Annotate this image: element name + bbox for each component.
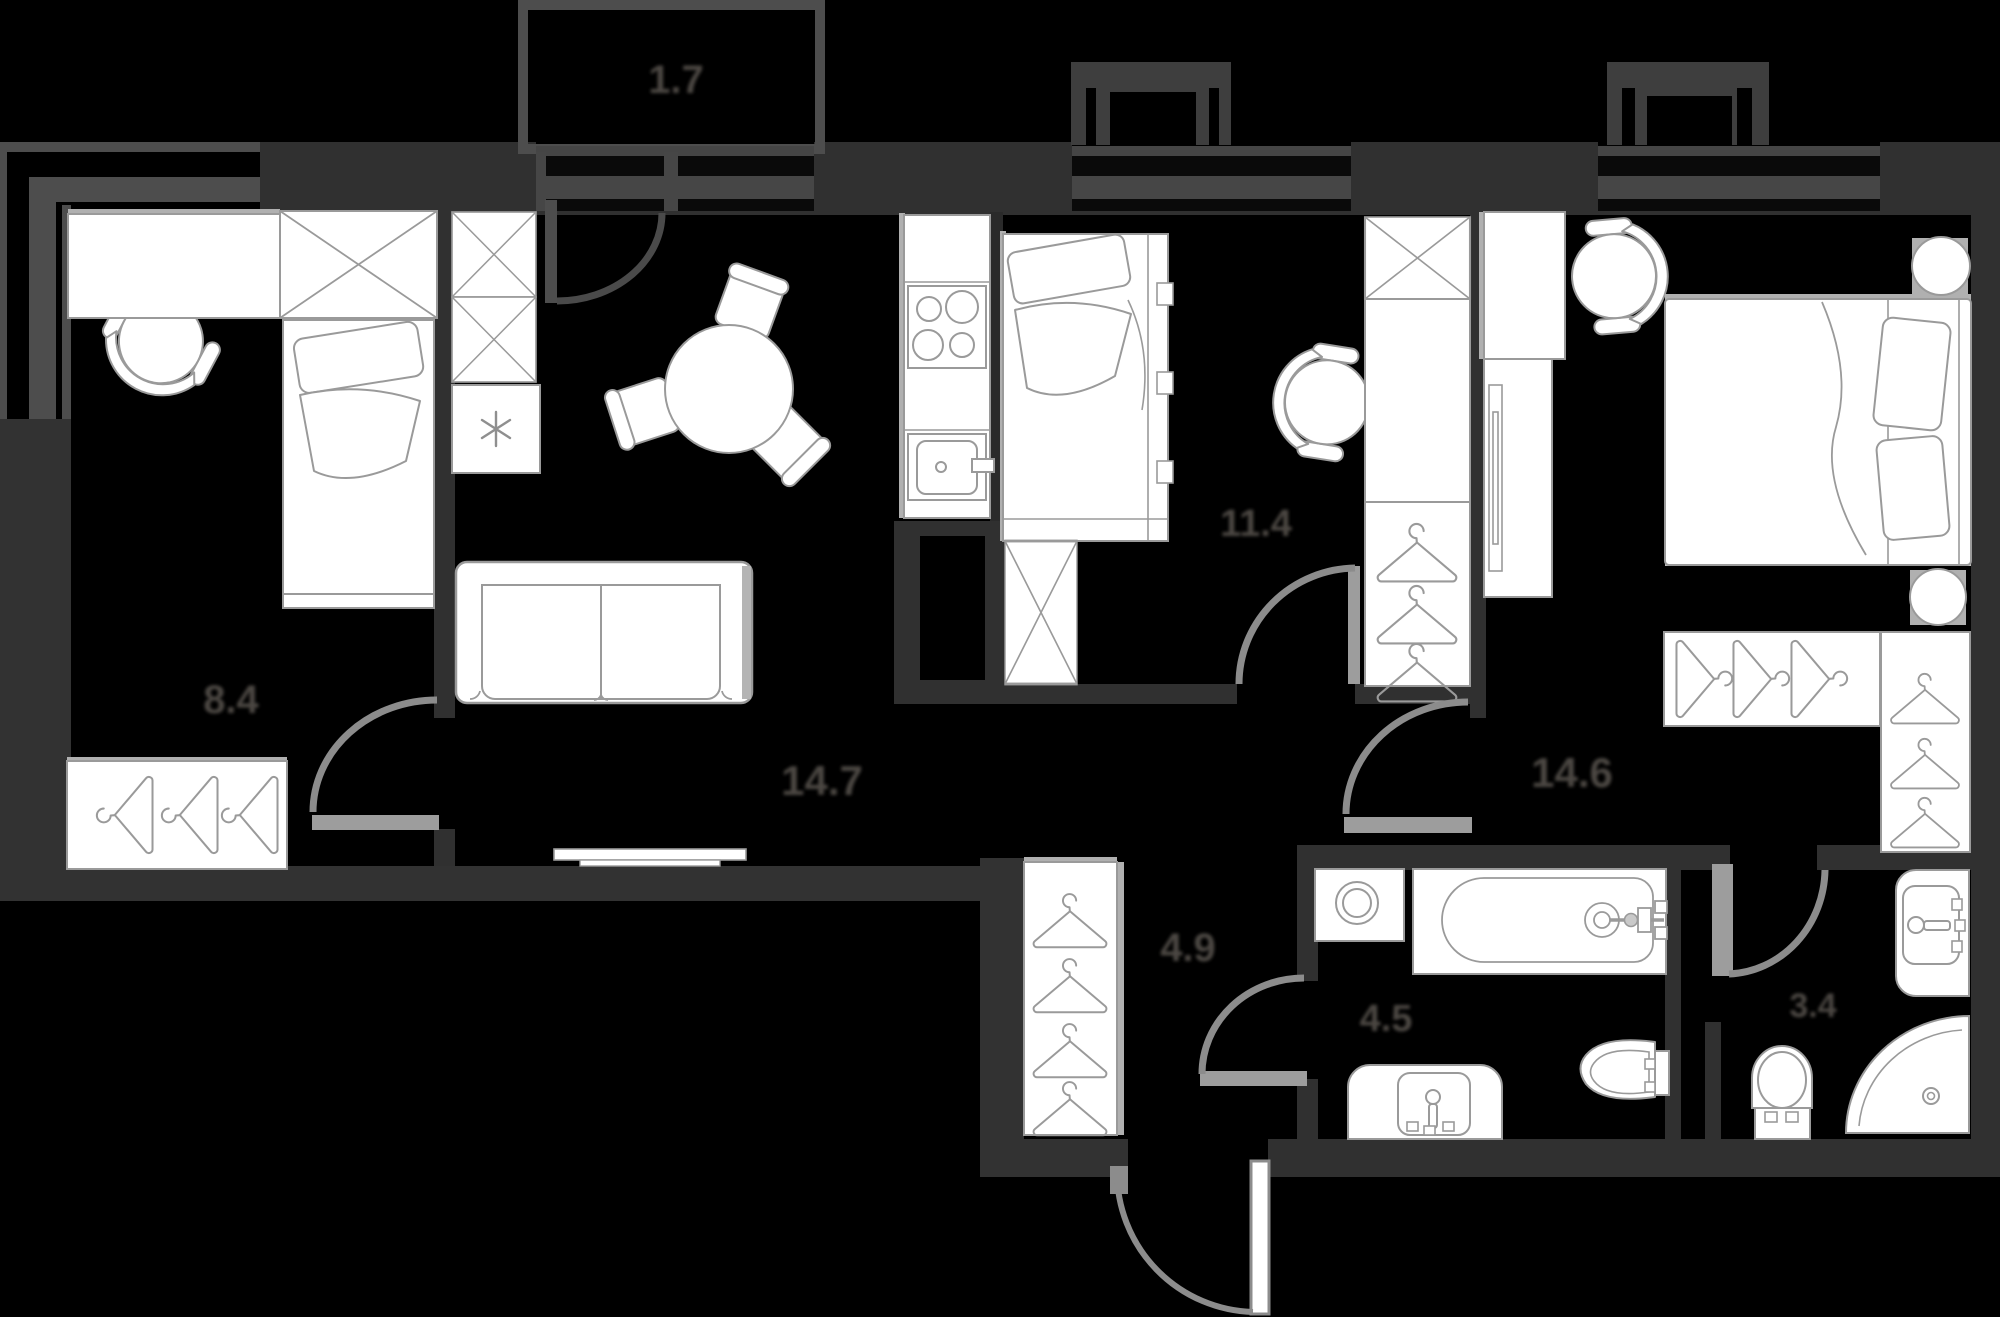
svg-text:8.4: 8.4 — [203, 678, 259, 722]
svg-text:3.4: 3.4 — [1789, 987, 1836, 1025]
svg-text:11.4: 11.4 — [1220, 503, 1292, 545]
svg-text:14.7: 14.7 — [781, 757, 863, 804]
svg-text:4.9: 4.9 — [1160, 926, 1216, 970]
svg-text:4.5: 4.5 — [1360, 998, 1413, 1040]
svg-text:1.7: 1.7 — [648, 58, 704, 102]
svg-text:14.6: 14.6 — [1531, 749, 1613, 796]
